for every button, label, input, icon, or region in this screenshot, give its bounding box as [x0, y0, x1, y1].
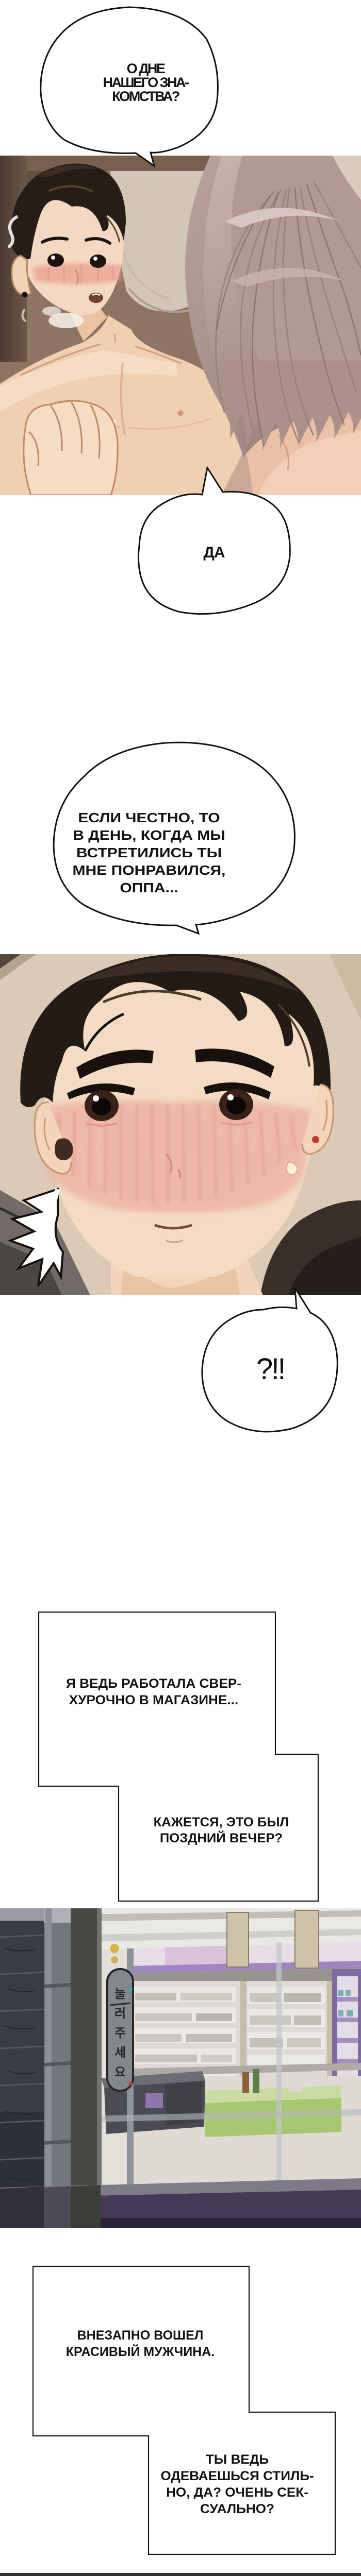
svg-text:세: 세	[114, 2046, 126, 2060]
svg-text:눌: 눌	[114, 1987, 126, 2001]
svg-text:요: 요	[114, 2065, 126, 2079]
svg-text:주: 주	[114, 2026, 126, 2040]
svg-text:러: 러	[114, 2007, 126, 2021]
